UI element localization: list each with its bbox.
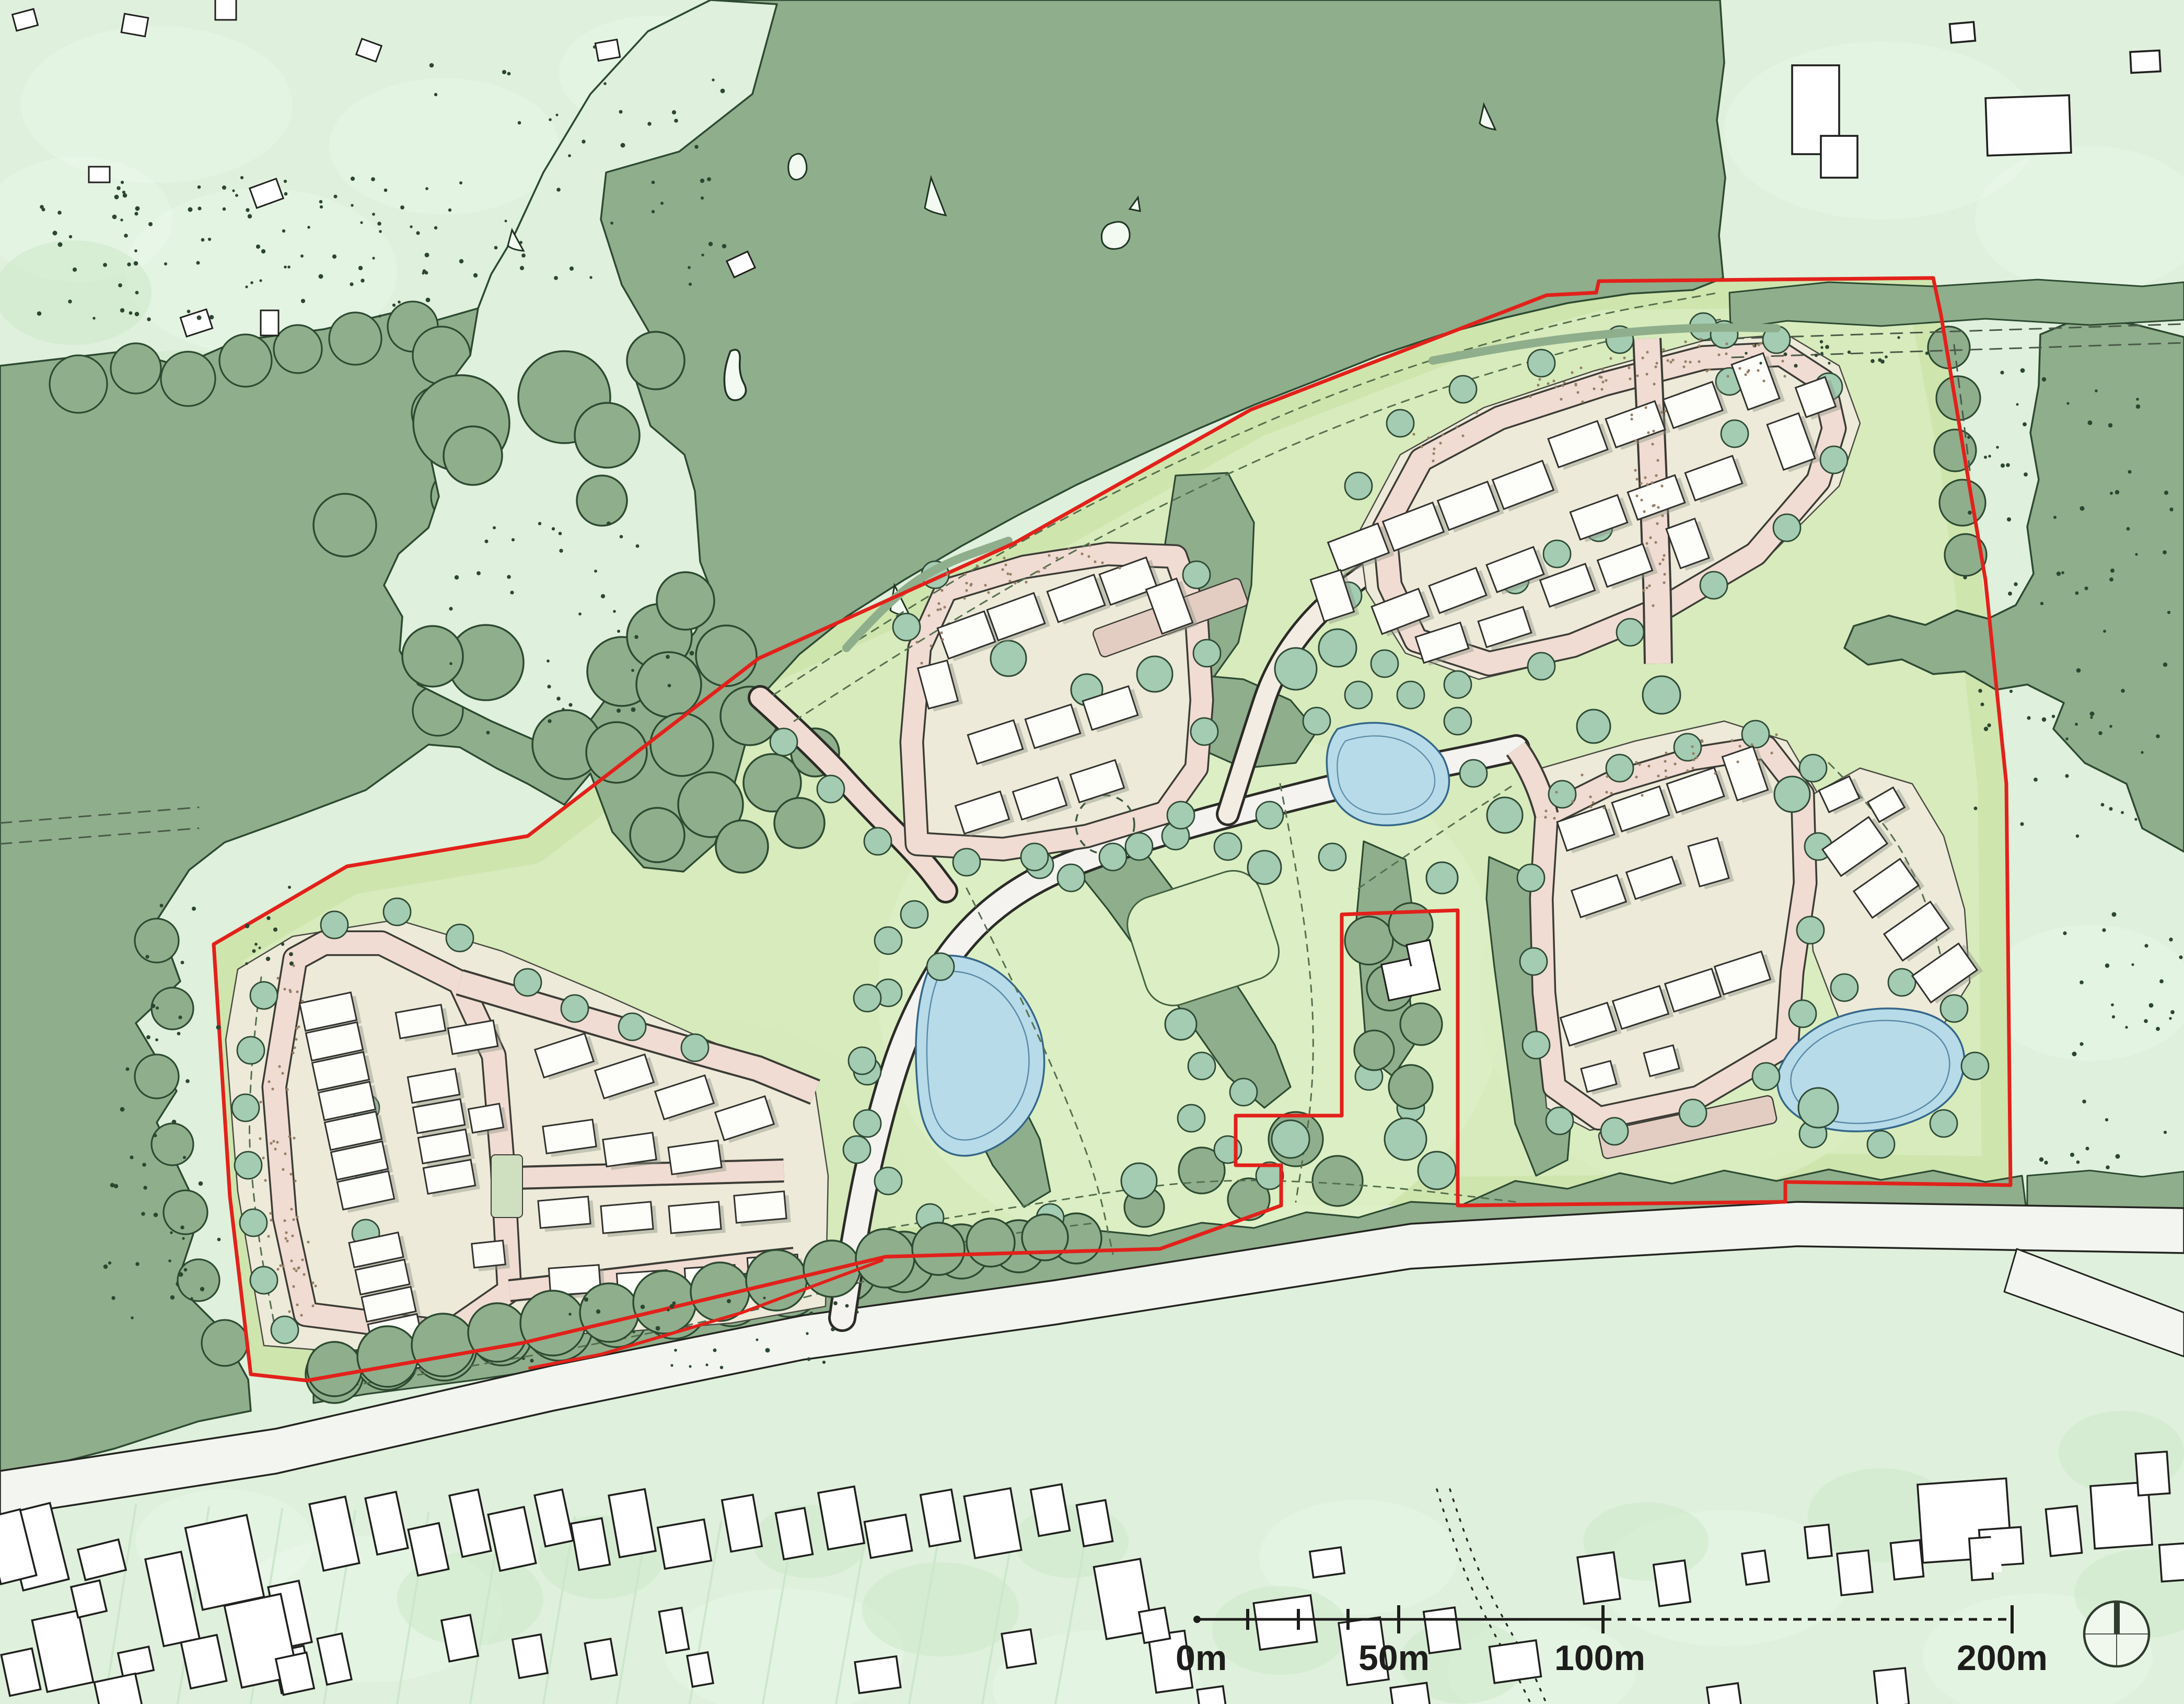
svg-text:0m: 0m xyxy=(1176,1638,1227,1678)
svg-text:200m: 200m xyxy=(1957,1638,2048,1678)
svg-text:100m: 100m xyxy=(1554,1638,1645,1678)
svg-text:50m: 50m xyxy=(1358,1638,1430,1678)
